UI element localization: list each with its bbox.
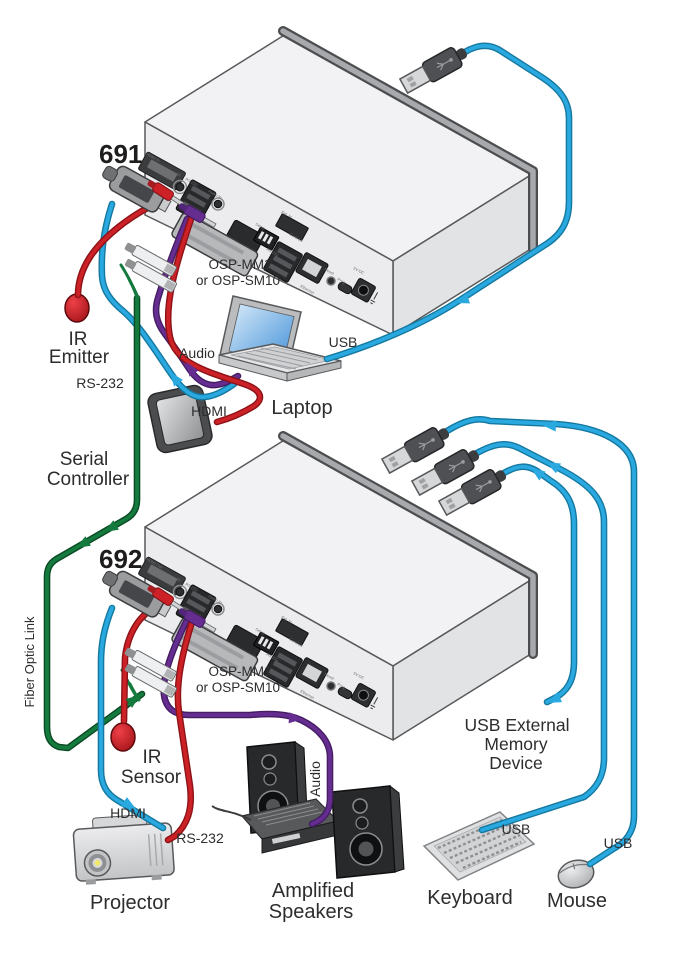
- usb-memory-label-1: USB External: [464, 715, 569, 735]
- audio-laptop-label: Audio: [179, 345, 215, 361]
- rx-sfp-label-2: or OSP-SM10: [196, 680, 280, 695]
- projector-label: Projector: [90, 892, 170, 914]
- speakers-label-2: Speakers: [269, 901, 354, 923]
- usb-memory-label-3: Device: [489, 753, 543, 773]
- tx-model-label: 691: [99, 139, 142, 169]
- fiber-link-label: Fiber Optic Link: [22, 616, 37, 708]
- usb-laptop-label: USB: [329, 334, 358, 350]
- audio-speakers-label: Audio: [307, 761, 323, 797]
- keyboard-label: Keyboard: [427, 887, 513, 909]
- mouse-label: Mouse: [547, 890, 607, 912]
- ir-sensor: [111, 723, 135, 751]
- serial-controller-label-1: Serial: [60, 449, 109, 470]
- tx-sfp-label-2: or OSP-SM10: [196, 273, 280, 288]
- rx-model-label: 692: [99, 544, 142, 574]
- rs232-controller-label: RS-232: [76, 375, 124, 391]
- tx-sfp-label-1: OSP-MM1: [208, 257, 271, 272]
- ir-sensor-label-2: Sensor: [121, 767, 182, 788]
- laptop-label: Laptop: [271, 397, 332, 419]
- usb-mouse-label: USB: [604, 835, 633, 851]
- speakers-label-1: Amplified: [272, 880, 354, 902]
- rx-sfp-label-1: OSP-MM1: [208, 664, 271, 679]
- usb-connector-host: [398, 42, 471, 96]
- laptop: [219, 296, 341, 381]
- hdmi-laptop-label: HDMI: [191, 403, 227, 419]
- usb-memory-label-2: Memory: [484, 734, 547, 754]
- rs232-projector-label: RS-232: [176, 830, 224, 846]
- serial-controller-label-2: Controller: [47, 469, 130, 490]
- ir-emitter: [65, 294, 89, 322]
- ir-emitter-label-2: Emitter: [49, 347, 110, 368]
- usb-keyboard-label: USB: [502, 821, 531, 837]
- ir-sensor-label-1: IR: [143, 747, 162, 768]
- diagram-canvas: 691 692 OSP-MM1 or OSP-SM10 OSP-MM1 or O…: [0, 0, 680, 954]
- hdmi-projector-label: HDMI: [110, 805, 146, 821]
